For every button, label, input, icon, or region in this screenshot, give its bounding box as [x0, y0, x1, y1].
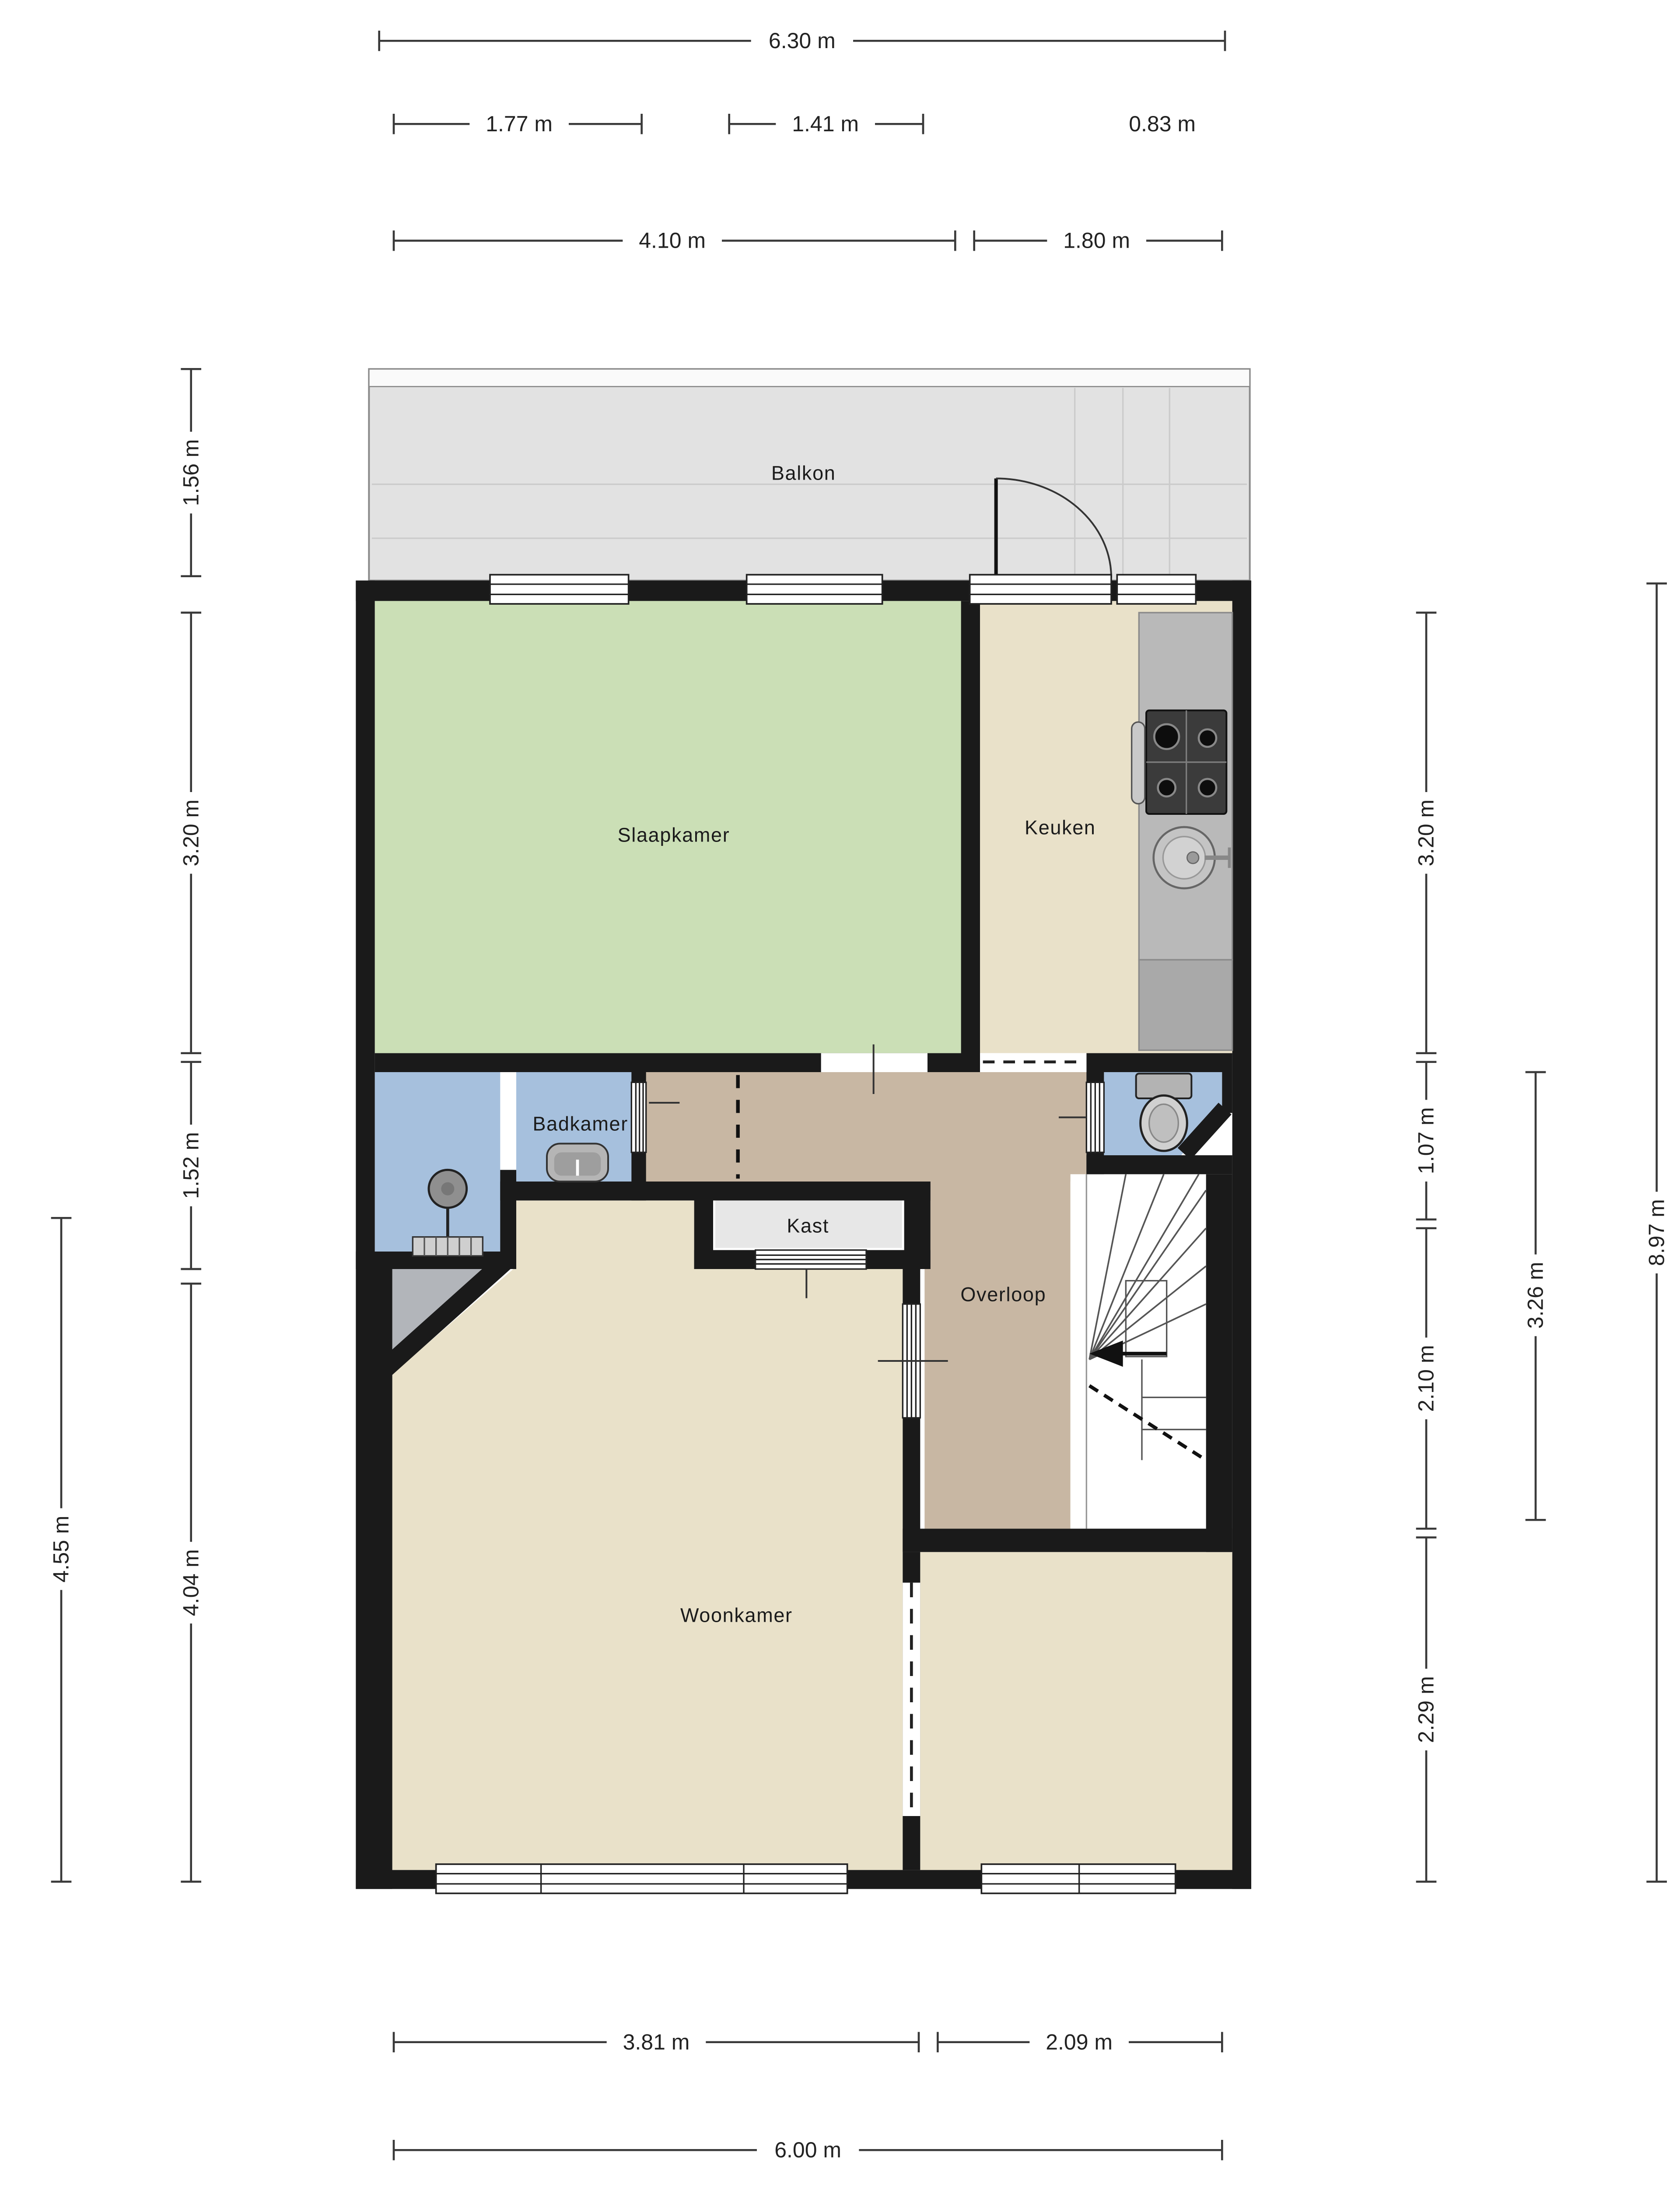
- room-rear: [920, 1552, 1232, 1870]
- room-overloop-lower: [924, 1182, 1070, 1529]
- window-top-2: [747, 575, 882, 604]
- dim-top-total: 6.30 m: [379, 28, 1225, 53]
- badkamer-label: Badkamer: [532, 1112, 628, 1135]
- window-top-1: [490, 575, 629, 604]
- badkamer-internal-door: [500, 1072, 516, 1170]
- dim-label: 8.97 m: [1644, 1199, 1669, 1266]
- dim-label: 3.26 m: [1523, 1262, 1548, 1329]
- dim-right-column: 3.20 m 1.07 m 2.10 m 2.29 m 3.26 m 8.97 …: [1414, 583, 1669, 1882]
- window-bottom-2: [981, 1864, 1175, 1893]
- keuken-label: Keuken: [1025, 817, 1096, 839]
- dim-label: 2.10 m: [1414, 1345, 1438, 1412]
- bathroom-sink-icon: [547, 1143, 608, 1182]
- window-top-4: [1117, 575, 1196, 604]
- floorplan-drawing: Balkon: [0, 0, 1680, 2188]
- kitchen-counter: [1132, 613, 1232, 1050]
- dim-label: 1.77 m: [486, 112, 553, 136]
- dim-label: 4.10 m: [639, 228, 706, 253]
- overloop-label: Overloop: [960, 1283, 1046, 1305]
- dim-label: 3.20 m: [178, 799, 203, 866]
- dim-label: 4.04 m: [178, 1549, 203, 1616]
- dim-top-row2: 1.77 m 1.41 m 0.83 m: [394, 112, 1196, 136]
- window-bottom-1: [436, 1864, 847, 1893]
- dim-bottom-rows: 3.81 m 2.09 m 6.00 m: [394, 2030, 1222, 2162]
- balcony-railing: [369, 369, 1249, 386]
- room-woonkamer-bay: [516, 1200, 694, 1269]
- woonkamer-label: Woonkamer: [680, 1604, 793, 1627]
- kast-label: Kast: [787, 1215, 829, 1237]
- balcony: Balkon: [369, 369, 1249, 580]
- dim-label: 1.52 m: [178, 1132, 203, 1199]
- dim-label: 6.30 m: [769, 28, 836, 53]
- dim-label: 1.80 m: [1063, 228, 1130, 253]
- dim-label: 6.00 m: [774, 2138, 841, 2162]
- toilet-icon: [1136, 1073, 1192, 1151]
- dim-label: 1.56 m: [178, 439, 203, 506]
- dim-label: 2.29 m: [1414, 1676, 1438, 1743]
- dim-left-column: 1.56 m 3.20 m 1.52 m 4.04 m 4.55 m: [49, 369, 203, 1882]
- floorplan-page: Balkon: [0, 0, 1680, 2188]
- dim-top-row3: 4.10 m 1.80 m: [394, 228, 1222, 253]
- slaapkamer-label: Slaapkamer: [618, 824, 730, 846]
- dim-label: 1.41 m: [792, 112, 859, 136]
- dim-label: 1.07 m: [1414, 1107, 1438, 1174]
- dim-label: 4.55 m: [49, 1516, 73, 1583]
- window-top-3: [970, 575, 1111, 604]
- room-woonkamer: [392, 1269, 903, 1870]
- dim-label: 3.81 m: [623, 2030, 690, 2054]
- dim-label: 3.20 m: [1414, 799, 1438, 866]
- room-overloop-upper: [644, 1072, 1086, 1182]
- rear-room-opening: [903, 1583, 920, 1816]
- balcony-label: Balkon: [771, 462, 836, 484]
- dim-label: 0.83 m: [1129, 112, 1196, 136]
- stove-icon: [1132, 710, 1227, 814]
- dim-label: 2.09 m: [1046, 2030, 1113, 2054]
